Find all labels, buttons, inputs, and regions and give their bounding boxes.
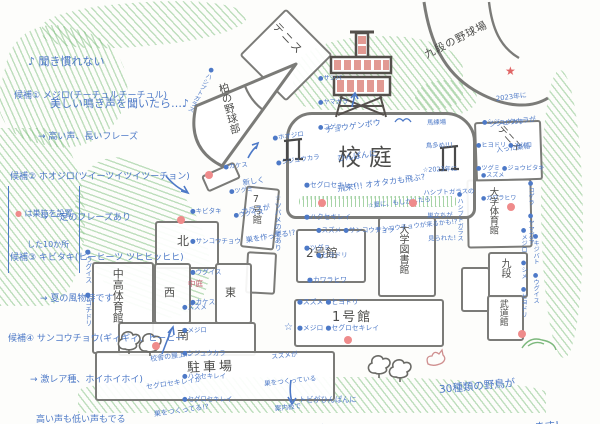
candidate-2-main: 候補② ホオジロ(ツイーツイツイツーチョン) [10,171,190,185]
bird-item: ●セグロセキレイ [304,180,358,191]
bird-item: ●サシバ [318,75,348,83]
note-line: カラスが [241,200,292,217]
note-line: 校舎の屋上に [150,348,202,364]
note-line: チョウゲンボウ [325,113,418,136]
bird-item: ●スズメ [182,304,232,312]
nestbox-dot [205,171,213,179]
note-line: スズメが [271,349,314,362]
note-line: 巣を作ってる!? [245,228,296,245]
nestbox-dot [152,342,160,350]
note-line: 2023年に [495,90,533,103]
legend-line1: は巣箱を設置 [25,209,73,218]
bird-right-band-2: ●メジロ ●シメ ●ヒヨドリ [519,227,527,315]
bird-item: ●スズメ ●ヒヨドリ [297,298,379,307]
note-line: 馬練場 [427,119,472,128]
nestbox-legend: ● は巣箱を設置 した10か所 [8,186,80,273]
barn-note: 馬練場 鳥多め!!! ☆2023年に ハシブトガラスの 巣立ちが 見られた! [420,103,476,258]
hand-drawn-campus-bird-map: 校庭 テニス 柏の野球部 九段の野球場 7号館 北 中高体育館 西 東 南 2号… [0,0,600,424]
note-line: ハシブトガラスの [423,188,474,197]
nestbox-dot [177,216,185,224]
note-line: 30種類の野鳥が [439,373,557,398]
bird-right-band-3: ●キジバト ●ウグイス [531,233,539,311]
legend-line2: した10か所 [27,240,73,250]
swallow-nest-note: ☆ツバメの巣あり [273,194,282,250]
bird-gym-mh-left: ●ウグイス ●コチドリ [83,248,92,340]
note-line: 巣立ちが [427,211,475,220]
bird-item: ●シジュウカラ [482,119,544,127]
bird-item: ●カワラヒワ [481,195,516,203]
sparrow-star-icon: ☆ [284,321,293,334]
note-line: 新しく [242,171,287,187]
bird-list-field-bottom: ●スズメ ●サンコウチョウ ●ヒヨドリ [316,209,394,277]
bird-item: ●ホオジロ [272,128,317,143]
nestbox-dot [518,330,526,338]
note-line: 見られた! [428,234,476,243]
bird-item: ●ヒヨドリ ●メジロ [476,142,544,150]
candidate-1-sub: → 高い声、長いフレーズ [38,131,190,145]
note-line: 鳥多め!!! [426,142,473,151]
kudan-label: 九段 [498,258,511,290]
bird-item: ●スズメ ●サンコウチョウ [316,226,394,234]
tobi-note: トビがひんぱんに みれる。 [299,376,357,424]
bird-item: ●サンコウチョウ [190,236,241,246]
note-line: 巣をつくってる!? [153,402,209,419]
note-line: トビがひんぱんに [299,395,357,404]
nestbox-dot [318,199,326,207]
bird-item: ●スズメ [481,172,516,180]
nestbox-dot-icon: ● [15,209,22,218]
nestbox-dot [507,203,515,211]
candidate-1-main: 候補① メジロ(チーチュルチーチュル) [14,90,190,104]
nestbox-dot [344,336,352,344]
nestbox-dot [409,199,417,207]
bird-item: ●ヒヨドリ [316,251,394,259]
note-line: ☆2023年に [422,165,473,174]
kudan-field-arc [489,2,519,58]
note-line: 学校中に 暮らしています! [437,419,561,424]
candidate-3-sub: → 夏の風物詩です [40,293,190,307]
note-line: セグロセキレイが [146,375,206,392]
budokan-label: 武道館 [496,299,508,333]
courtyard-title: 中庭 [188,279,232,288]
closing-note: 30種類の野鳥が 学校中に 暮らしています! みんなで探してみよう!!! [426,343,567,424]
bird-gym-univ-left: ●ハシブトガラス [455,191,463,247]
